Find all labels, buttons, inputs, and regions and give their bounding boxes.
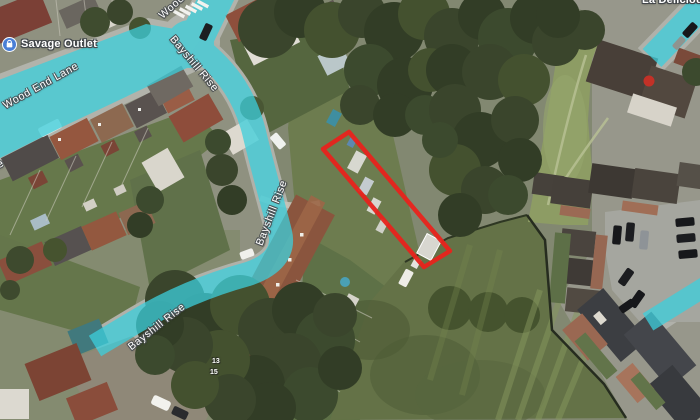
red-umbrella [644,76,655,87]
map-imagery [0,0,700,420]
shopping-bag-icon [2,37,17,52]
house-number-15: 15 [210,369,218,376]
house-number-13: 13 [212,358,220,365]
poi-savage-outlet-label: Savage Outlet [21,39,97,50]
poi-la-delicious[interactable]: La Delicious [642,0,700,6]
satellite-map[interactable]: Wood End Lane Wood End Lane Wood Bayshil… [0,0,700,420]
poi-la-delicious-label: La Delicious [642,0,700,6]
poi-savage-outlet[interactable]: Savage Outlet [2,37,97,52]
